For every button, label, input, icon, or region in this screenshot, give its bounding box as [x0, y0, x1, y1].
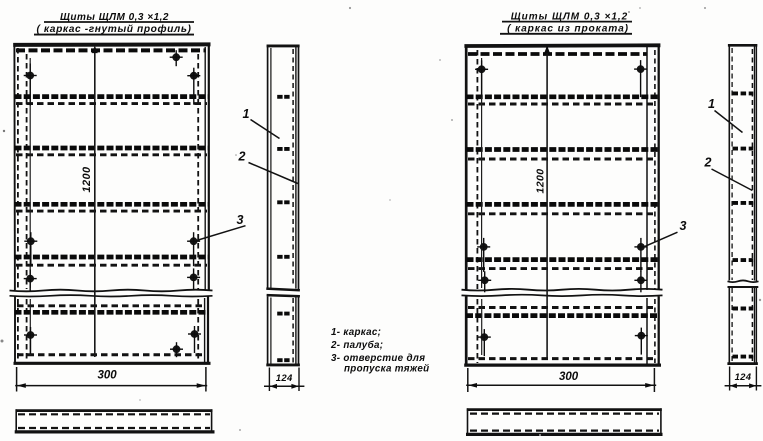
svg-text:124: 124	[276, 373, 293, 384]
svg-text:Щиты ЩЛМ 0,3 ×1,2: Щиты ЩЛМ 0,3 ×1,2	[511, 11, 629, 22]
svg-text:( каркас из проката): ( каркас из проката)	[507, 23, 629, 34]
svg-text:1: 1	[243, 107, 250, 121]
svg-text:1200: 1200	[81, 166, 93, 193]
svg-text:1: 1	[708, 97, 715, 111]
svg-text:1- каркас;: 1- каркас;	[331, 327, 381, 338]
svg-text:2: 2	[238, 149, 246, 163]
svg-text:3- отверстие для: 3- отверстие для	[331, 353, 425, 364]
svg-text:3: 3	[680, 219, 687, 233]
svg-text:2: 2	[704, 156, 712, 170]
svg-text:пропуска тяжей: пропуска тяжей	[344, 363, 429, 374]
svg-text:300: 300	[98, 370, 118, 382]
svg-text:2- палуба;: 2- палуба;	[330, 340, 383, 351]
svg-text:124: 124	[735, 372, 752, 383]
svg-text:( каркас -гнутый профиль): ( каркас -гнутый профиль)	[37, 23, 192, 35]
svg-text:3: 3	[237, 213, 244, 227]
svg-text:300: 300	[559, 371, 579, 383]
svg-text:1200: 1200	[535, 169, 547, 194]
